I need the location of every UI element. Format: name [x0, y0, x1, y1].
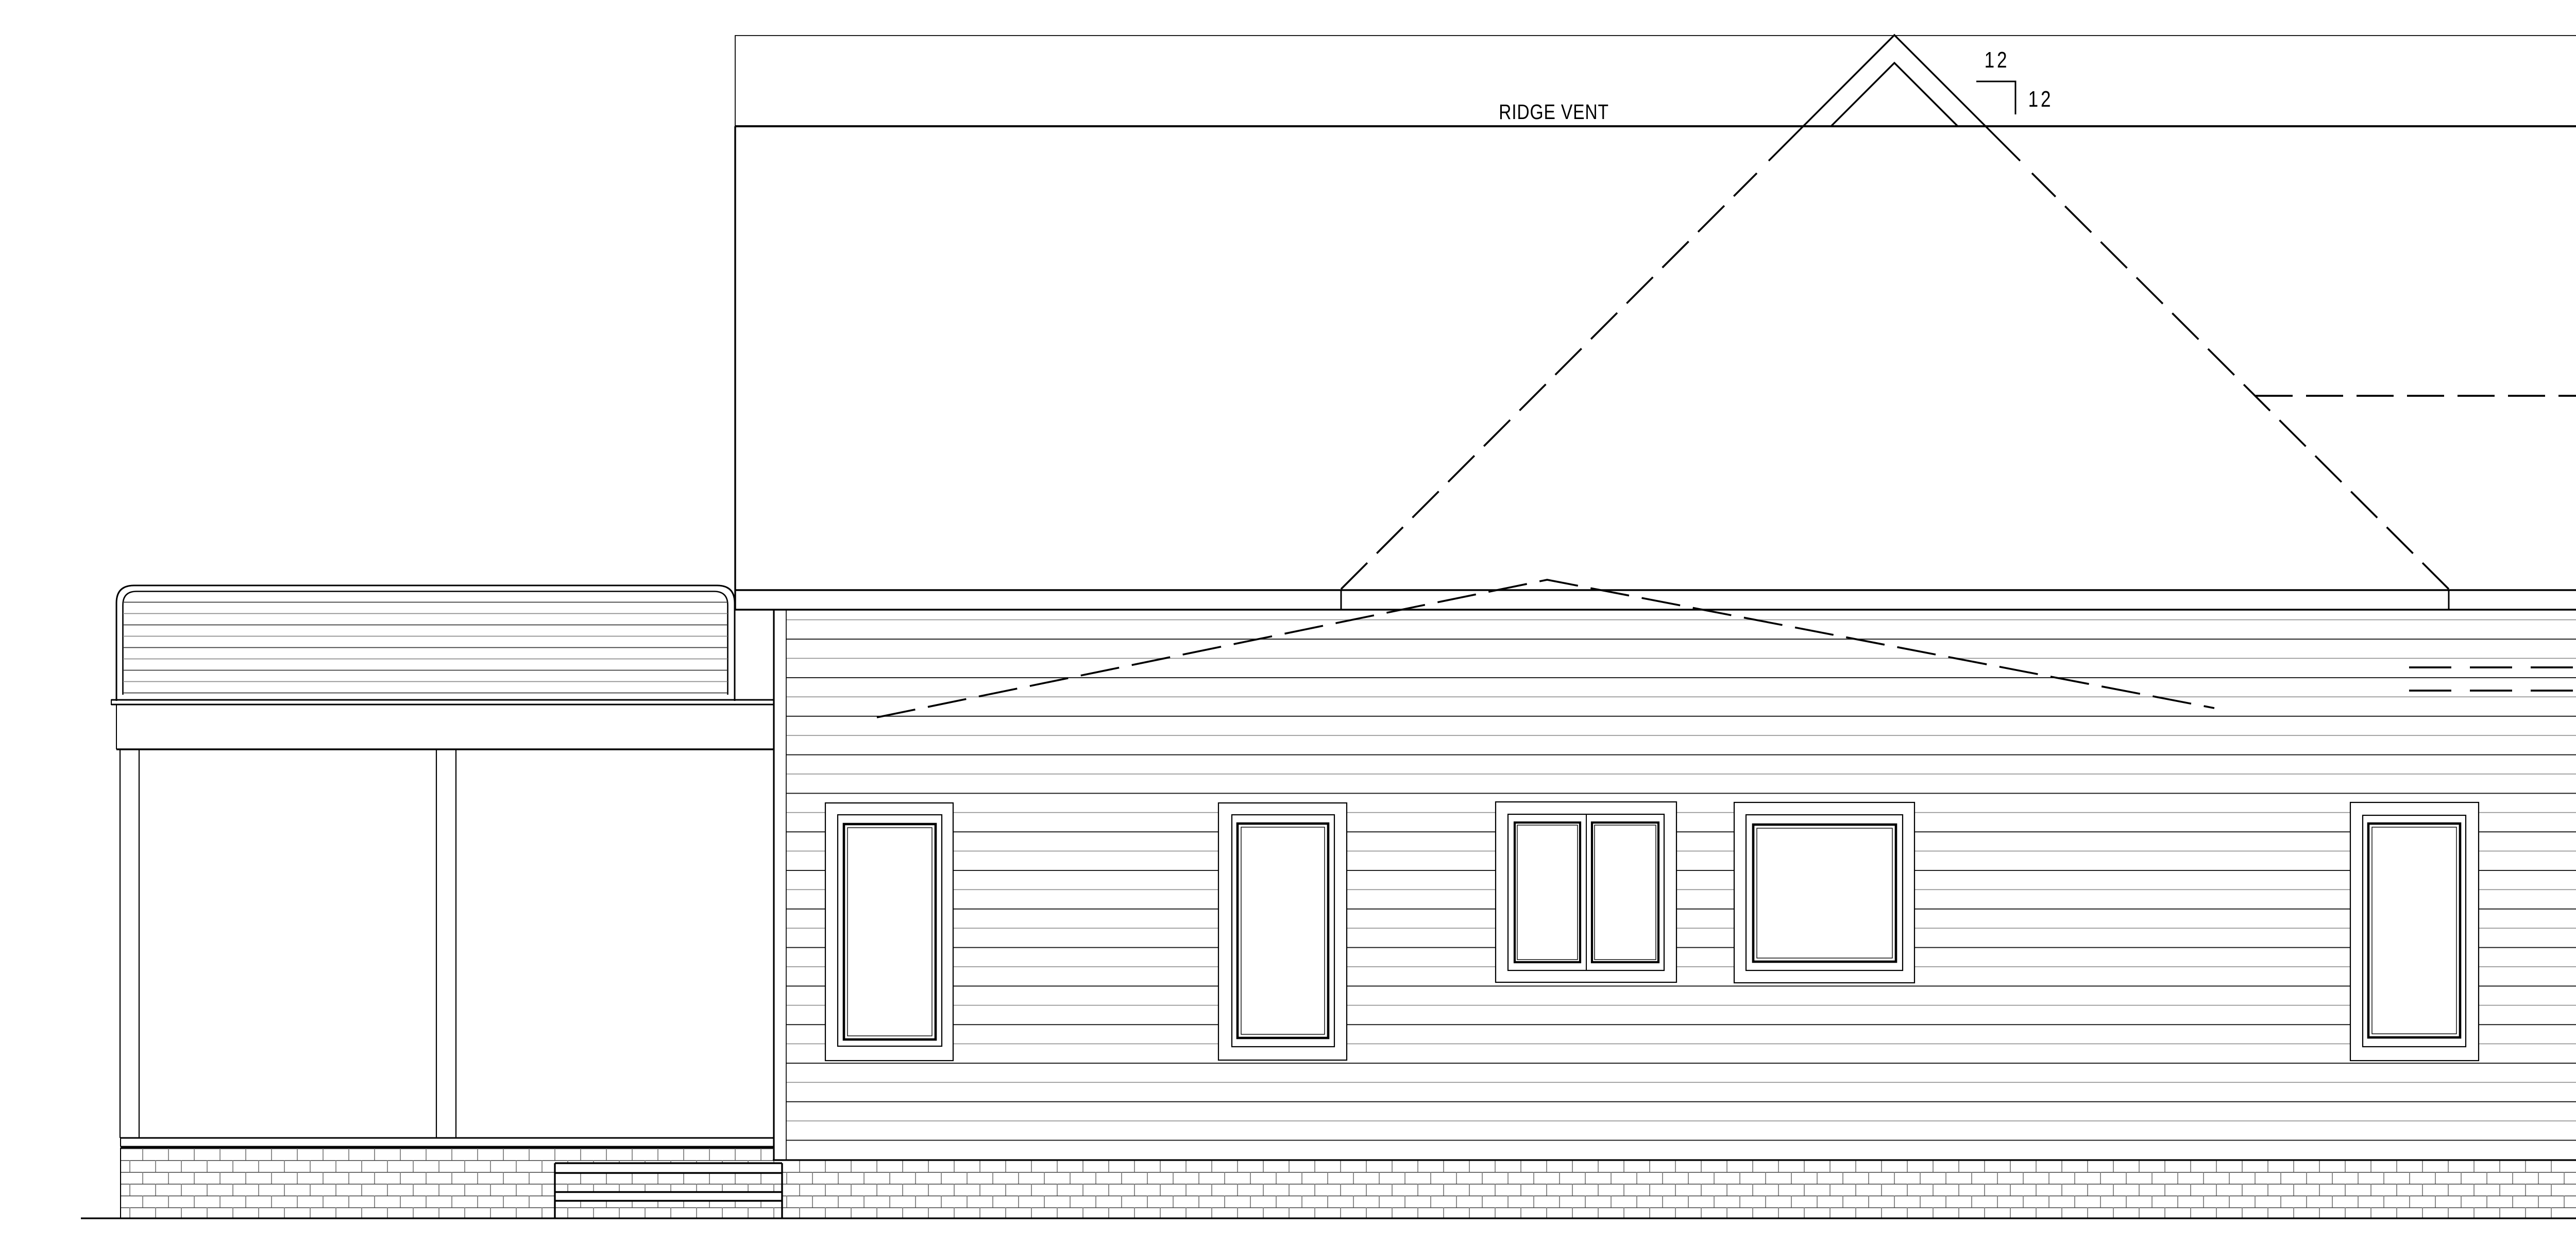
svg-text:12: 12	[1985, 47, 2010, 73]
svg-text:RIDGE VENT: RIDGE VENT	[1499, 100, 1609, 124]
svg-text:12: 12	[2028, 87, 2054, 112]
